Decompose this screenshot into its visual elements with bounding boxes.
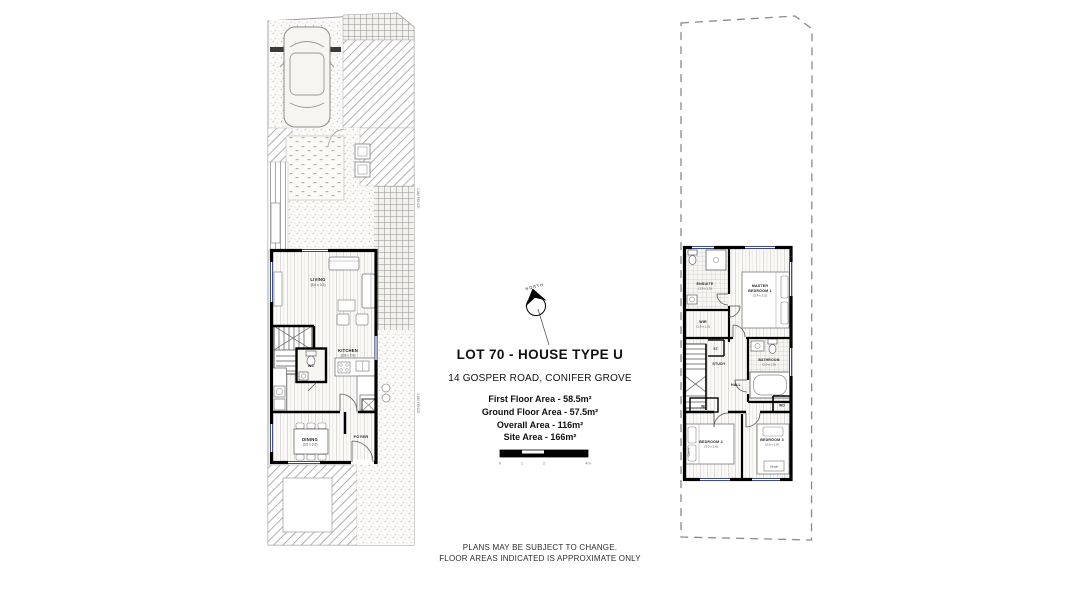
toilet-tank xyxy=(688,250,697,255)
planter-box xyxy=(355,144,370,159)
trellis-area xyxy=(343,13,414,40)
room-dims-wir: (1.9 x 1.2) xyxy=(696,325,710,329)
stepping-stone xyxy=(382,384,390,392)
room-dims-dining: (3.5 x 3.0) xyxy=(303,443,318,447)
area-line-site: Site Area - 166m² xyxy=(408,431,672,444)
north-arrow-tail xyxy=(538,309,549,345)
north-label: NORTH xyxy=(525,282,545,291)
page-title: LOT 70 - HOUSE TYPE U xyxy=(408,347,672,362)
path-strip xyxy=(360,186,374,250)
armchair xyxy=(356,314,368,325)
front-path xyxy=(357,465,414,545)
room-label-foyer: FOYER xyxy=(354,434,369,439)
toilet-tank xyxy=(768,339,777,344)
room-label-hall: HALL xyxy=(731,383,741,387)
toilet-icon xyxy=(769,345,776,354)
sofa xyxy=(362,274,375,308)
address: 14 GOSPER ROAD, CONIFER GROVE xyxy=(408,373,672,384)
bed-label-single: Single xyxy=(770,465,779,469)
chair xyxy=(296,423,304,429)
scale-tick-4m: 4m xyxy=(585,461,591,466)
room-label-kitchen: KITCHEN xyxy=(338,348,358,353)
fence-label: 1.8M FENCE xyxy=(416,188,420,209)
room-dims-bedroom3: (2.6 x 1.9) xyxy=(765,443,779,447)
north-arrow-circle xyxy=(527,297,546,316)
scale-bar: 0 1 2 4m xyxy=(499,450,592,466)
front-pad xyxy=(283,478,332,532)
washer-icon xyxy=(274,386,285,397)
paved-courtyard xyxy=(286,136,344,200)
gravel-area-right xyxy=(374,186,414,250)
room-label-dining: DINING xyxy=(302,437,318,442)
tub-unit xyxy=(274,399,285,410)
chair xyxy=(318,455,326,461)
scale-tick-0: 0 xyxy=(499,461,502,466)
room-label-wir: WIR xyxy=(699,320,707,324)
room-label-study: STUDY xyxy=(712,362,726,366)
room-label-master-1: MASTER xyxy=(752,284,769,288)
room-dims-master: (3.4 x 3.3) xyxy=(753,293,767,297)
room-label-bathroom: BATHROOM xyxy=(758,358,779,362)
plan-drawing: 1.8M FENCE 1.8M FENCE xyxy=(0,0,1084,602)
stepping-stone xyxy=(382,394,390,402)
room-label-wd-left: WD xyxy=(701,405,707,409)
chair xyxy=(307,455,315,461)
toilet-icon xyxy=(689,256,696,265)
basin xyxy=(299,372,308,380)
toilet-tank xyxy=(306,351,316,356)
area-line-overall: Overall Area - 116m² xyxy=(408,419,672,432)
disclaimer-line-1: PLANS MAY BE SUBJECT TO CHANGE. xyxy=(380,543,700,554)
room-label-bedroom3: BEDROOM 3 xyxy=(760,438,784,442)
planter-box xyxy=(355,162,370,177)
room-label-ensuite: ENSUITE xyxy=(697,282,714,286)
room-label-master-2: BEDROOM 1 xyxy=(748,289,772,293)
room-dims-bathroom: (2.0 x 1.9) xyxy=(762,363,776,367)
title-block: LOT 70 - HOUSE TYPE U 14 GOSPER ROAD, CO… xyxy=(408,347,672,444)
room-dims-living: (5.6 x 3.3) xyxy=(311,283,326,287)
first-floor-plan: Queen Single xyxy=(681,16,812,540)
coffee-table xyxy=(338,300,355,311)
room-dims-bedroom2: (3.0 x 2.6) xyxy=(704,445,718,449)
bed-label-queen: Queen xyxy=(687,447,691,456)
scale-tick-1: 1 xyxy=(521,461,524,466)
car-icon xyxy=(280,27,334,127)
armchair xyxy=(337,314,349,325)
room-dims-kitchen: (3.8 x 2.0) xyxy=(341,354,356,358)
bathtub-icon xyxy=(750,372,790,398)
room-label-wd-right: WD xyxy=(779,404,785,408)
room-label-wc: WC xyxy=(308,364,314,368)
shower-icon xyxy=(706,250,726,270)
room-dims-ensuite: (1.9 x 1.5) xyxy=(698,287,712,291)
chair xyxy=(318,423,326,429)
tv-unit xyxy=(274,272,282,306)
ground-floor-site-plan: 1.8M FENCE 1.8M FENCE xyxy=(268,13,420,545)
sofa xyxy=(329,257,359,270)
chair xyxy=(296,455,304,461)
disclaimer-line-2: FLOOR AREAS INDICATED IS APPROXIMATE ONL… xyxy=(380,554,700,565)
garden-area-rear xyxy=(343,40,414,128)
room-label-bedroom2: BEDROOM 2 xyxy=(699,440,723,444)
side-yard-gravel xyxy=(377,250,414,330)
bench xyxy=(271,203,280,243)
area-summary: First Floor Area - 58.5m² Ground Floor A… xyxy=(408,393,672,444)
pillow xyxy=(781,276,788,298)
chair xyxy=(307,423,315,429)
room-label-living: LIVING xyxy=(310,277,325,282)
disclaimer: PLANS MAY BE SUBJECT TO CHANGE. FLOOR AR… xyxy=(380,543,700,565)
pillow xyxy=(781,302,788,324)
room-label-store: ST. xyxy=(713,347,718,351)
north-arrow: NORTH xyxy=(521,282,549,345)
basin xyxy=(751,341,764,351)
basin xyxy=(687,295,697,304)
pillow xyxy=(688,427,696,443)
floor-plan-sheet: 1.8M FENCE 1.8M FENCE xyxy=(0,0,1084,602)
pillow xyxy=(763,427,783,436)
scale-tick-2: 2 xyxy=(543,461,546,466)
area-line-ground-floor: Ground Floor Area - 57.5m² xyxy=(408,406,672,419)
area-line-first-floor: First Floor Area - 58.5m² xyxy=(408,393,672,406)
